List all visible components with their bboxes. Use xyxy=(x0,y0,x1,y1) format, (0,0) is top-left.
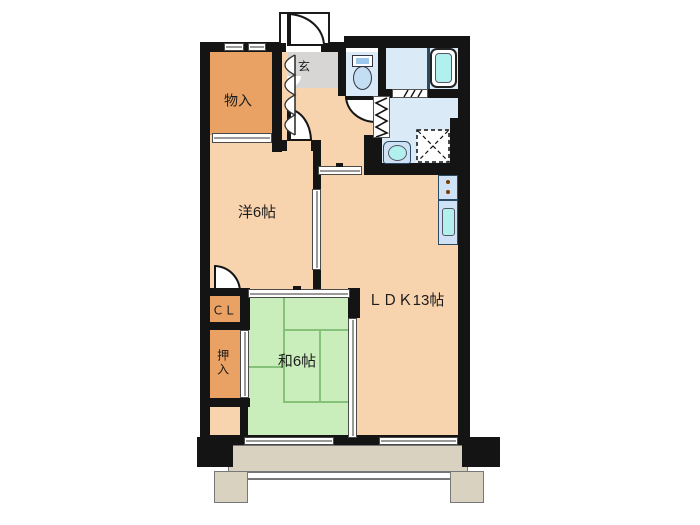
toilet-bowl-icon xyxy=(353,66,372,90)
wall xyxy=(313,140,321,189)
label-oshiire: 押入 xyxy=(215,349,228,377)
label-washitsu: 和6帖 xyxy=(278,354,316,371)
window-monoire-1 xyxy=(224,43,244,51)
wall xyxy=(272,140,287,151)
door-handle xyxy=(293,286,301,290)
door-handle xyxy=(336,163,343,167)
label-ldk: ＬＤＫ13帖 xyxy=(368,293,445,310)
sliding-partition-washitsu-ldk xyxy=(348,318,357,438)
label-western-room: 洋6帖 xyxy=(238,205,276,222)
bathtub-icon xyxy=(430,48,457,88)
label-genkan: 玄 xyxy=(298,60,310,73)
tatami-line xyxy=(319,331,321,403)
wall xyxy=(240,398,248,437)
sliding-door-oshiire xyxy=(240,330,249,398)
kitchen-sink-icon xyxy=(438,200,458,245)
window-ldk xyxy=(379,437,458,445)
wall xyxy=(344,36,470,48)
stove-icon xyxy=(438,175,458,200)
corner-pillar-left xyxy=(197,437,233,467)
sliding-partition-western-ldk xyxy=(312,189,321,270)
washbasin-icon xyxy=(383,141,411,164)
balcony-left-wing xyxy=(214,471,248,503)
sliding-door-monoire xyxy=(212,133,272,143)
label-monoire: 物入 xyxy=(224,93,252,108)
floor-plan: 物入 玄 洋6帖 ＬＤＫ13帖 和6帖 ＣＬ 押入 xyxy=(0,0,700,525)
corner-pillar-right xyxy=(462,437,500,467)
sliding-partition-washitsu-top xyxy=(248,289,350,298)
shoe-closet-doors-icon xyxy=(277,54,297,136)
window-washitsu xyxy=(244,437,334,445)
wall xyxy=(338,42,346,96)
label-cl: ＣＬ xyxy=(212,304,236,317)
folding-door-icon xyxy=(392,89,428,98)
tatami-line xyxy=(283,297,285,403)
balcony-slab xyxy=(228,445,468,472)
wall xyxy=(200,42,210,445)
wall xyxy=(450,118,462,168)
wall xyxy=(364,163,462,175)
balcony-railing xyxy=(248,471,450,480)
accordion-door-icon xyxy=(373,96,390,138)
tatami-line xyxy=(283,401,357,403)
balcony-right-wing xyxy=(450,471,484,503)
window-monoire-2 xyxy=(248,43,266,51)
sliding-door-ldk-entry xyxy=(318,166,362,175)
wall xyxy=(200,322,250,330)
wall xyxy=(378,36,386,96)
washer-pan-icon xyxy=(416,129,450,163)
